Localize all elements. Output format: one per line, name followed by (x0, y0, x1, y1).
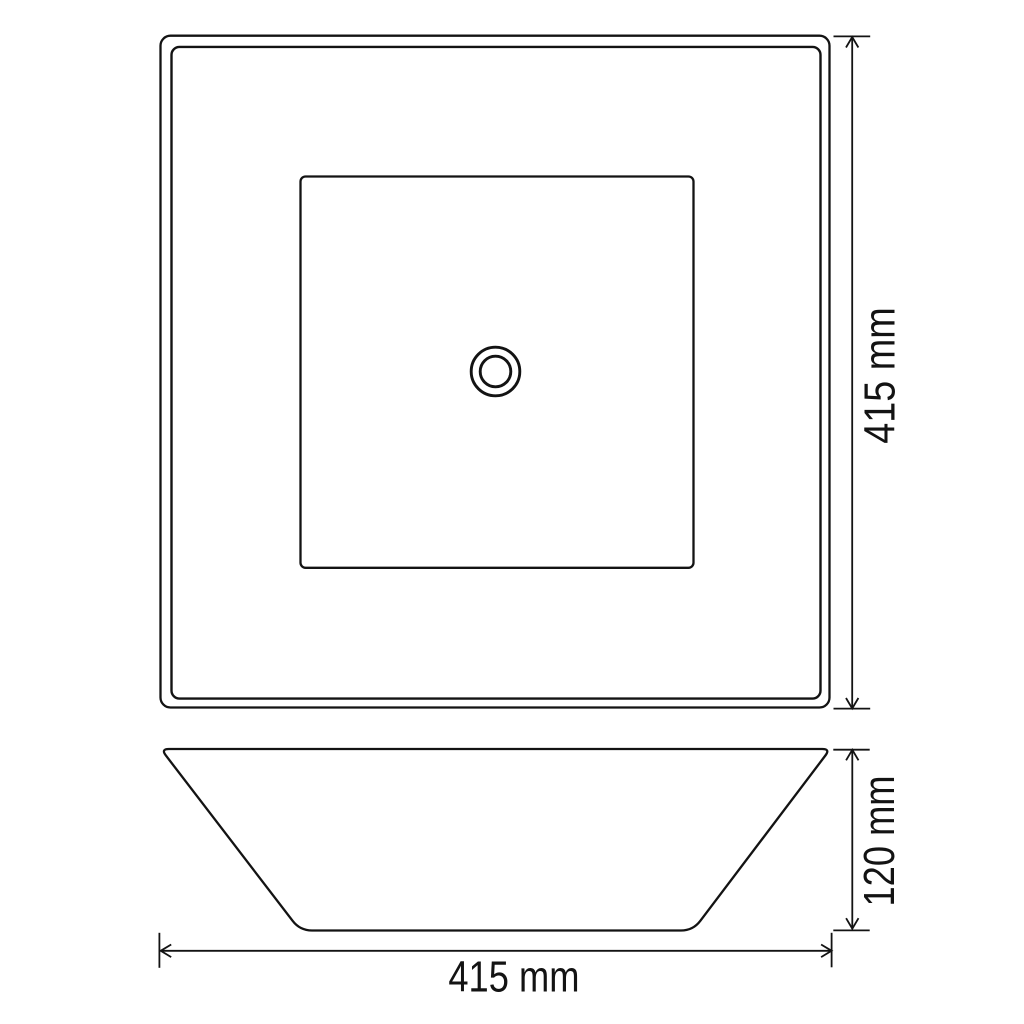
svg-text:120 mm: 120 mm (856, 775, 904, 906)
svg-text:415 mm: 415 mm (448, 954, 579, 1002)
svg-text:415 mm: 415 mm (855, 307, 904, 444)
